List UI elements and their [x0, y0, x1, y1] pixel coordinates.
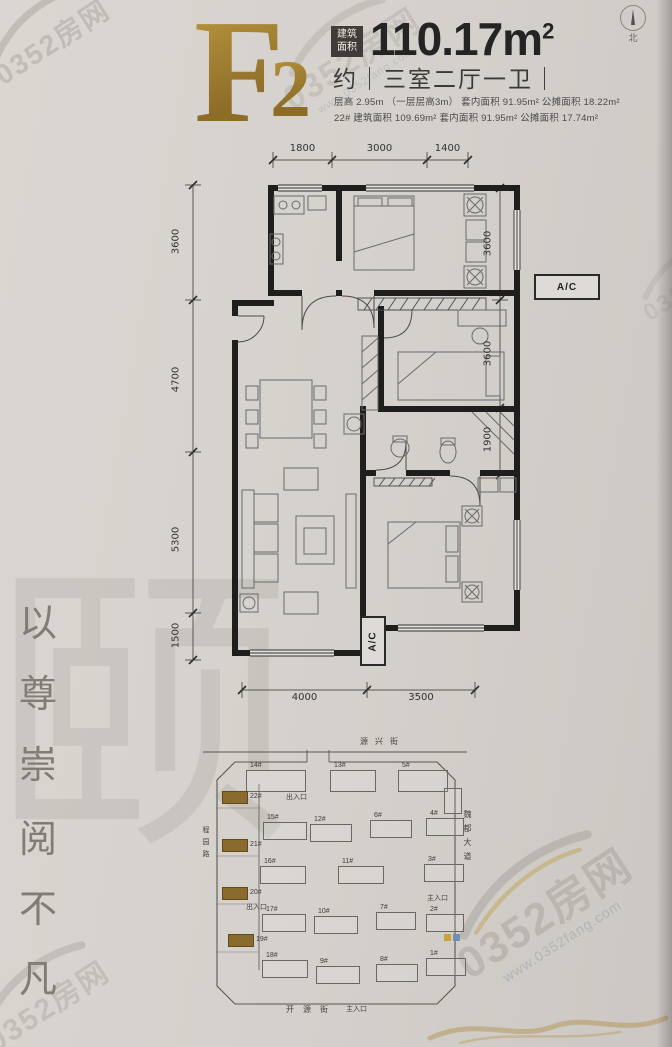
slogan-char: 崇	[16, 734, 60, 789]
fan-coil-icon	[462, 506, 482, 526]
dim-top-1: 1800	[273, 143, 332, 154]
ac-unit-right: A/C	[534, 274, 600, 300]
dim-right-1: 3600	[483, 224, 494, 264]
building-10: 10#	[314, 916, 358, 934]
dim-top-3: 1400	[427, 143, 468, 154]
building-14: 14#	[246, 770, 306, 792]
building-label: 13#	[334, 762, 346, 769]
building-label: 9#	[320, 958, 328, 965]
building-12: 12#	[310, 824, 352, 842]
building-label: 6#	[374, 812, 382, 819]
dim-left-1: 3600	[171, 222, 182, 262]
dim-left-4: 1500	[171, 616, 182, 656]
street-top-label: 源兴街	[360, 736, 405, 747]
floor-lamp	[240, 594, 258, 612]
building-label: 16#	[264, 858, 276, 865]
building-20-highlighted: 20#	[222, 887, 248, 900]
street-bottom-label: 开源街	[286, 1004, 337, 1015]
building-5: 5#	[398, 770, 448, 792]
building-1: 1#	[426, 958, 466, 976]
building-13: 13#	[330, 770, 376, 792]
ac-label: A/C	[367, 631, 378, 651]
walls	[232, 185, 520, 660]
dim-top-2: 3000	[332, 143, 427, 154]
building-label: 21#	[250, 841, 262, 848]
watermark-url: www.0352fang.com	[440, 858, 672, 1024]
plan-type-number: 2	[270, 52, 311, 126]
building-22-highlighted: 22#	[222, 791, 248, 804]
site-facility	[444, 788, 462, 814]
building-label: 17#	[266, 906, 278, 913]
compass: 北	[616, 5, 650, 44]
slogan-char: 阅	[16, 808, 60, 863]
building-label: 2#	[430, 906, 438, 913]
entrance-top-label: 出入口	[286, 792, 307, 802]
building-19-highlighted: 19#	[228, 934, 254, 947]
building-label: 8#	[380, 956, 388, 963]
slogan-char: 不	[16, 878, 60, 933]
dim-left-3: 5300	[171, 520, 182, 560]
building-3: 3#	[424, 864, 464, 882]
sofa	[242, 468, 318, 614]
area-badge-line1: 建筑	[333, 29, 361, 42]
watermark-swoosh-icon	[0, 0, 109, 73]
building-18: 18#	[262, 960, 308, 978]
compass-north-label: 北	[616, 31, 650, 44]
building-2: 2#	[426, 914, 464, 932]
dim-left-2: 4700	[171, 360, 182, 400]
building-8: 8#	[376, 964, 418, 982]
dim-bottom-1: 4000	[242, 692, 367, 703]
slogan-char: 凡	[16, 948, 60, 1003]
fan-coil-icon	[464, 194, 486, 216]
legend-gold-square	[444, 934, 451, 941]
main-entrance-right-label: 主入口	[427, 893, 448, 903]
floorplan-drawing	[160, 140, 620, 720]
building-7: 7#	[376, 912, 416, 930]
building-15: 15#	[263, 822, 307, 840]
area-value: 110.17m2	[370, 12, 553, 66]
building-16: 16#	[260, 866, 306, 884]
area-badge: 建筑 面积	[331, 26, 363, 57]
building-label: 15#	[267, 814, 279, 821]
dim-right-2: 3600	[483, 334, 494, 374]
legend-blue-square	[453, 934, 460, 941]
building-label: 7#	[380, 904, 388, 911]
layout-summary: 约｜三室二厅一卫｜	[333, 60, 558, 94]
ac-label: A/C	[557, 282, 577, 293]
main-entrance-bottom-label: 主入口	[346, 1004, 367, 1014]
road-right-label: 魏都大道	[462, 810, 473, 866]
entrance-left-label: 出入口	[246, 902, 267, 912]
building-label: 11#	[342, 858, 353, 865]
watermark-swoosh-icon	[623, 221, 672, 308]
slogan-char: 尊	[16, 663, 60, 718]
wardrobe	[478, 478, 516, 492]
tv-cabinet	[346, 494, 356, 588]
spec-line-2: 22# 建筑面积 109.69m² 套内面积 91.95m² 公摊面积 17.7…	[334, 110, 598, 124]
building-label: 4#	[430, 810, 438, 817]
windows	[250, 185, 520, 656]
building-4: 4#	[426, 818, 464, 836]
building-label: 20#	[250, 889, 262, 896]
building-6: 6#	[370, 820, 412, 838]
dim-bottom-2: 3500	[367, 692, 475, 703]
building-label: 3#	[428, 856, 436, 863]
gold-signature-flourish	[420, 1008, 672, 1047]
area-unit-sup: 2	[542, 19, 553, 44]
bed-secondary	[354, 196, 414, 270]
building-label: 5#	[402, 762, 410, 769]
building-label: 18#	[266, 952, 278, 959]
area-unit: m	[502, 13, 542, 65]
fan-coil-icon	[462, 582, 482, 602]
kitchen-sink	[274, 196, 326, 214]
flyer-page: 颐 0352房网 0352房网 www.0352fang.com 0352房网 …	[0, 0, 672, 1047]
building-11: 11#	[338, 866, 384, 884]
toilet	[440, 438, 456, 463]
furniture	[240, 194, 516, 614]
building-label: 1#	[430, 950, 438, 957]
dim-right-3: 1900	[483, 420, 494, 460]
fan-coil-icon	[464, 266, 486, 288]
coffee-table	[296, 516, 334, 564]
closet	[362, 336, 378, 410]
area-badge-line2: 面积	[333, 42, 361, 55]
building-17: 17#	[262, 914, 306, 932]
dining-table	[246, 380, 326, 448]
watermark-brand: 0352房网	[0, 0, 144, 109]
building-label: 12#	[314, 816, 326, 823]
spec-line-1: 层高 2.95m （一层层高3m） 套内面积 91.95m² 公摊面积 18.2…	[334, 94, 620, 108]
building-label: 10#	[318, 908, 330, 915]
compass-ring-icon	[620, 5, 646, 31]
road-left-label: 程园路	[200, 826, 210, 862]
slogan-char: 以	[16, 592, 60, 647]
watermark-brand: 0352房网	[624, 233, 672, 336]
building-label: 14#	[250, 762, 262, 769]
building-21-highlighted: 21#	[222, 839, 248, 852]
building-label: 22#	[250, 793, 262, 800]
area-number: 110.17	[370, 13, 502, 65]
building-9: 9#	[316, 966, 360, 984]
bed-master	[388, 522, 460, 588]
watermark: 0352房网	[0, 0, 144, 109]
building-label: 19#	[256, 936, 268, 943]
ac-unit-bottom: A/C	[360, 616, 386, 666]
compass-needle-icon	[631, 9, 635, 25]
